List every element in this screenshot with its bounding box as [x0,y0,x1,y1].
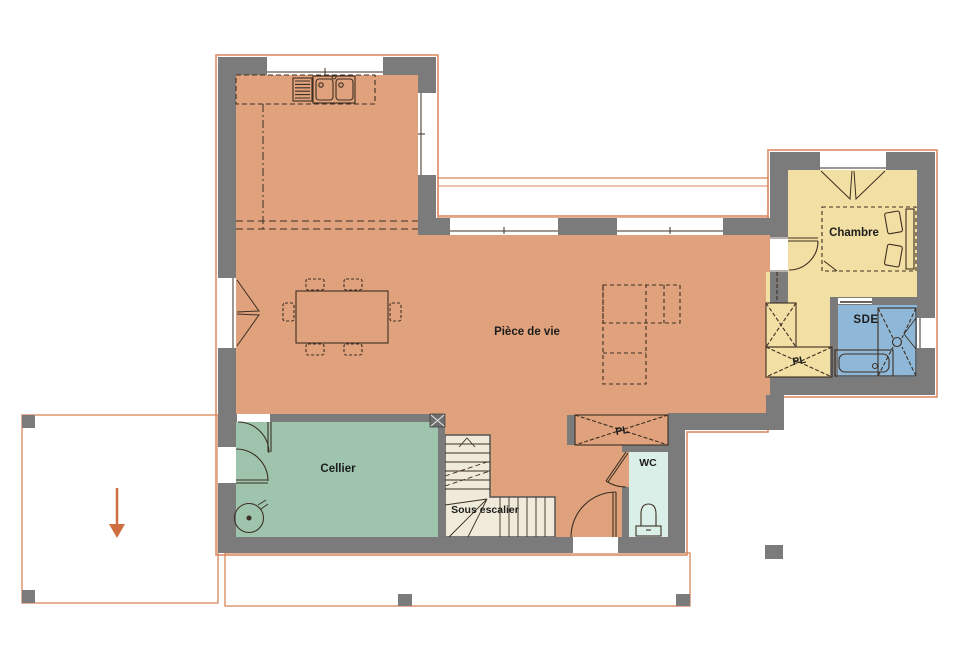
carport-post [22,590,35,603]
terrace-post [398,594,412,606]
carport-post [22,415,35,428]
label-sous-escalier: Sous escalier [451,504,519,516]
label-chambre: Chambre [829,227,879,239]
label-cellier: Cellier [320,463,356,475]
floor-plan: Pièce de vie Chambre SDE Cellier WC PL P… [0,0,960,664]
kitchen-window [267,57,383,75]
terrace-post [676,594,690,606]
garden-post [765,545,783,559]
label-sde: SDE [853,314,878,326]
label-pl-hall: PL [615,424,631,438]
terrace-bottom [225,553,690,606]
sde-window [917,318,935,348]
label-wc: WC [639,457,657,469]
terrace-top [438,178,768,218]
sde-sliding-door [838,298,872,304]
kitchen-side-window [418,93,436,175]
label-piece-de-vie: Pièce de vie [494,326,560,338]
living-window-1 [450,218,558,235]
living-window-2 [617,218,723,235]
vent-box-icon [430,414,445,427]
carport [22,415,218,603]
